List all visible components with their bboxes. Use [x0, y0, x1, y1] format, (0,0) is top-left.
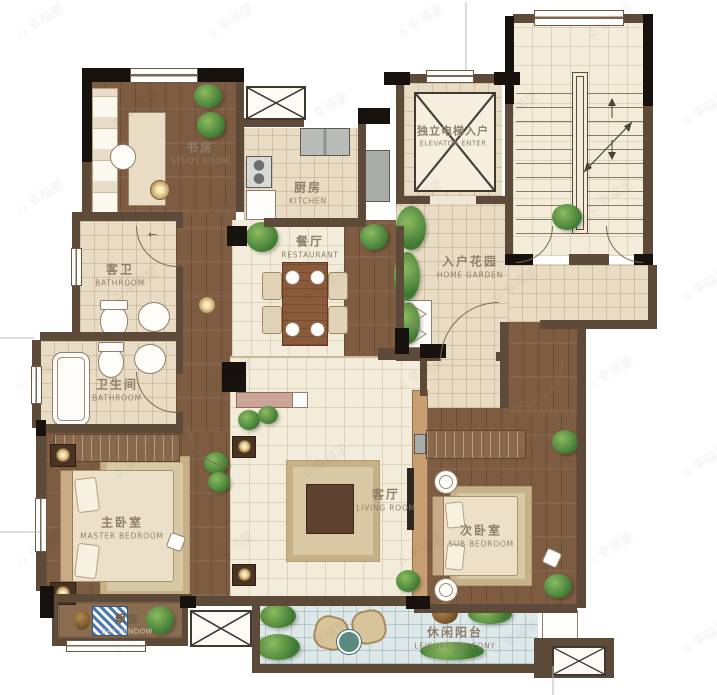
elevator-top-window — [426, 70, 474, 83]
toilet-tank — [98, 342, 124, 352]
coffee-table — [306, 484, 354, 534]
plate — [310, 322, 325, 337]
watermark: ⌂ 幸福里 — [13, 174, 67, 217]
bathroom-label: 卫生间BATHROOM — [92, 376, 142, 403]
beam-line — [230, 356, 382, 358]
bathroom-window — [31, 366, 42, 404]
watermark: ⌂ 幸福里 — [13, 0, 67, 41]
sub-wardrobe — [426, 430, 526, 459]
wall — [505, 104, 513, 256]
plant — [552, 430, 578, 454]
watermark: ⌂ 幸福里 — [678, 438, 717, 481]
study-label: 书房STUDY ROOM — [171, 139, 230, 166]
wall — [358, 124, 366, 227]
toilet-tank — [100, 300, 128, 310]
wall — [236, 80, 244, 212]
wall — [40, 332, 177, 341]
column — [36, 420, 46, 436]
wall — [36, 424, 177, 433]
plant — [208, 472, 230, 492]
wall — [190, 596, 426, 606]
wall — [176, 212, 183, 228]
master-bedroom-label: 主卧室MASTER BEDROOM — [80, 514, 164, 541]
home-garden-label: 入户花园HOME GARDEN — [437, 253, 503, 280]
column — [395, 328, 409, 354]
sub-bed-headboard — [432, 496, 444, 576]
balcony-table — [337, 630, 361, 654]
plant — [396, 570, 420, 592]
wall — [252, 664, 538, 673]
elevator-label: 独立电梯入户ELEVATOR ENTER — [417, 123, 489, 148]
column — [384, 72, 410, 85]
plate — [285, 322, 300, 337]
dining-chair — [262, 306, 282, 334]
wall — [176, 412, 183, 434]
column — [82, 68, 92, 162]
toilet — [98, 348, 124, 378]
lamp — [238, 568, 251, 581]
wall — [648, 265, 657, 322]
dining-chair — [262, 272, 282, 300]
wall — [72, 212, 178, 221]
leisure-balcony-label: 休闲阳台LEISURE BALCONY — [414, 624, 496, 651]
bottom-right-x-window — [552, 646, 606, 676]
basin — [134, 344, 166, 374]
basket — [74, 610, 90, 630]
wall — [643, 106, 653, 256]
wall — [252, 604, 260, 664]
refrigerator — [246, 190, 276, 220]
watermark: ⌂ 幸福里 — [583, 350, 637, 393]
column — [222, 362, 246, 392]
study-lamp — [150, 180, 170, 200]
study-chair — [110, 144, 136, 170]
wall — [82, 160, 91, 218]
wall — [569, 254, 609, 265]
stairwell-window — [534, 10, 624, 26]
restaurant-label: 餐厅RESTAURANT — [281, 233, 339, 260]
watermark: ⌂ 幸福里 — [678, 86, 717, 129]
dining-chair — [328, 306, 348, 334]
plate — [310, 270, 325, 285]
study-window — [130, 68, 198, 83]
duct-x-window — [246, 86, 306, 120]
watermark: ⌂ 幸福里 — [678, 262, 717, 305]
stairwell-door-left — [516, 226, 553, 263]
column — [505, 16, 514, 104]
plant — [544, 574, 572, 598]
plant — [260, 604, 296, 628]
wall — [264, 218, 358, 227]
kitchen-label: 厨房KITCHEN — [289, 179, 327, 206]
washing-machine — [542, 610, 578, 640]
wall — [396, 83, 404, 204]
kitchen-sink-unit — [300, 128, 350, 156]
hall-lamp — [198, 296, 216, 314]
living-room-label: 客厅LIVING ROOM — [356, 486, 416, 513]
bathtub — [52, 352, 90, 426]
plant — [360, 224, 388, 250]
plant — [258, 406, 278, 424]
wall — [577, 322, 586, 608]
plant — [552, 204, 582, 230]
column — [406, 596, 430, 609]
plant — [238, 410, 260, 430]
column — [196, 68, 244, 82]
watermark: ⌂ 幸福里 — [203, 0, 257, 41]
guest-bath-window — [71, 248, 82, 286]
sub-bedroom-label: 次卧室SUB BEDROOM — [448, 522, 514, 549]
elevator-door-gap — [430, 196, 476, 204]
guest-bathroom-label: 客卫BATHROOM — [95, 261, 145, 288]
column — [358, 108, 390, 124]
wall — [420, 352, 427, 396]
wall — [414, 604, 577, 613]
bay-bottom-window — [66, 640, 146, 652]
watermark: ⌂ 幸福里 — [678, 614, 717, 657]
entry-corridor-floor — [508, 264, 648, 322]
round-nightstand — [434, 578, 458, 602]
floor-plan: ← — [0, 0, 717, 695]
decor-box — [292, 392, 308, 408]
watermark: ⌂ 幸福里 — [393, 0, 447, 41]
wall — [176, 266, 183, 340]
plant — [194, 84, 222, 108]
pillow — [74, 477, 100, 513]
round-nightstand — [434, 470, 458, 494]
column — [180, 596, 196, 608]
plate — [285, 270, 300, 285]
plant — [256, 634, 300, 660]
lamp — [56, 448, 70, 462]
watermark: ⌂ 幸福里 — [583, 526, 637, 569]
bedroom-window — [35, 498, 47, 552]
wall — [46, 594, 192, 602]
column — [643, 14, 653, 106]
lamp — [238, 440, 251, 453]
kitchen-hob — [246, 156, 272, 188]
column — [40, 586, 54, 618]
wall — [540, 320, 657, 329]
bottom-x-window — [190, 610, 252, 647]
plant — [197, 112, 225, 138]
side-table — [414, 434, 426, 454]
pillow — [74, 543, 100, 579]
tall-cabinet — [362, 150, 390, 202]
stairwell-door-right — [606, 226, 643, 263]
wall — [500, 322, 508, 408]
study-sliding-door-arrow: ← — [148, 228, 157, 241]
wall — [176, 340, 183, 374]
bay-window-label: 飘窗BAY WINDOW — [101, 611, 153, 636]
basin — [138, 302, 170, 332]
master-bed-headboard — [60, 470, 73, 582]
dining-chair — [328, 272, 348, 300]
column — [227, 226, 247, 246]
